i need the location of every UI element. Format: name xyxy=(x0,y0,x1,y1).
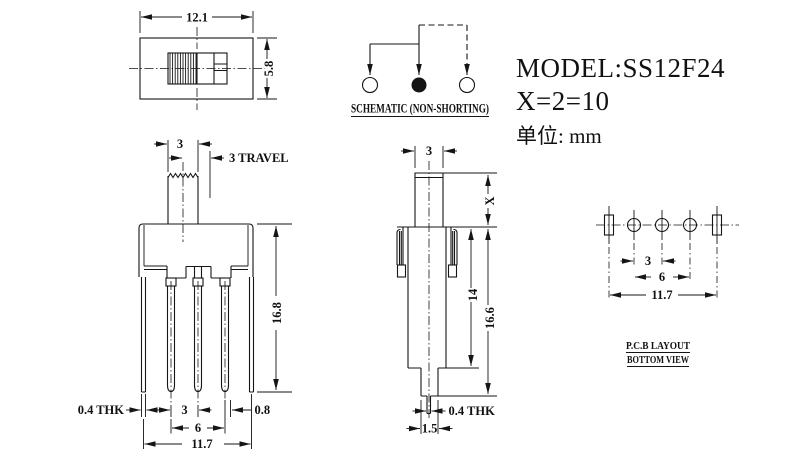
drawing-canvas: 12.1 5.8 SCHEMATIC (NON-SHORTING) MODEL:… xyxy=(0,0,800,460)
terminal-3-circle xyxy=(460,78,475,93)
pcb-total-dim: 11.7 xyxy=(651,288,672,302)
side-clip xyxy=(397,227,403,265)
front-height-dim: 16.8 xyxy=(270,302,284,324)
side-clip xyxy=(451,227,457,265)
model-number: MODEL:SS12F24 xyxy=(516,53,725,83)
front-edge-dim: 0.8 xyxy=(255,403,271,417)
top-view: 12.1 5.8 xyxy=(129,11,277,111)
pcb-span-dim: 6 xyxy=(659,270,665,284)
title-block: MODEL:SS12F24 X=2=10 单位: mm xyxy=(516,53,725,148)
terminal-1-circle xyxy=(363,78,378,93)
front-view: 3 3 TRAVEL 16.8 0.4 THK 3 0.8 6 11.7 xyxy=(78,137,292,451)
side-body xyxy=(408,227,446,396)
front-total-width-dim: 11.7 xyxy=(191,437,212,451)
mounting-pin xyxy=(142,277,146,392)
schematic-view: SCHEMATIC (NON-SHORTING) xyxy=(351,25,489,117)
unit-label: 单位: mm xyxy=(516,124,602,148)
side-view: 3 X 14 16.6 0.4 THK 1.5 xyxy=(397,144,497,436)
side-pin-thickness-dim: 0.4 THK xyxy=(449,404,496,418)
schematic-caption: SCHEMATIC (NON-SHORTING) xyxy=(351,102,489,116)
side-knob-width-dim: 3 xyxy=(426,144,432,158)
side-tip-width-dim: 1.5 xyxy=(422,422,438,436)
front-knob-width-dim: 3 xyxy=(177,137,183,151)
front-span-dim: 6 xyxy=(195,421,201,435)
top-view-width-dim: 12.1 xyxy=(186,11,208,25)
front-pitch-dim: 3 xyxy=(181,403,187,417)
common-terminal-circle xyxy=(412,78,427,93)
front-travel-dim: 3 TRAVEL xyxy=(229,151,289,165)
side-height-dim: 16.6 xyxy=(483,307,497,329)
top-view-height-dim: 5.8 xyxy=(262,61,276,77)
front-pin-thickness-dim: 0.4 THK xyxy=(78,403,125,417)
pcb-caption-line2: BOTTOM VIEW xyxy=(627,354,689,366)
pcb-pitch-dim: 3 xyxy=(645,254,651,268)
x-spec: X=2=10 xyxy=(516,86,609,116)
side-x-dim: X xyxy=(483,196,497,205)
pcb-view: 3 6 11.7 P.C.B LAYOUT BOTTOM VIEW xyxy=(596,206,739,367)
mounting-pin xyxy=(250,277,254,392)
pcb-caption-line1: P.C.B LAYOUT xyxy=(626,340,691,352)
side-body-height-dim: 14 xyxy=(466,288,480,301)
